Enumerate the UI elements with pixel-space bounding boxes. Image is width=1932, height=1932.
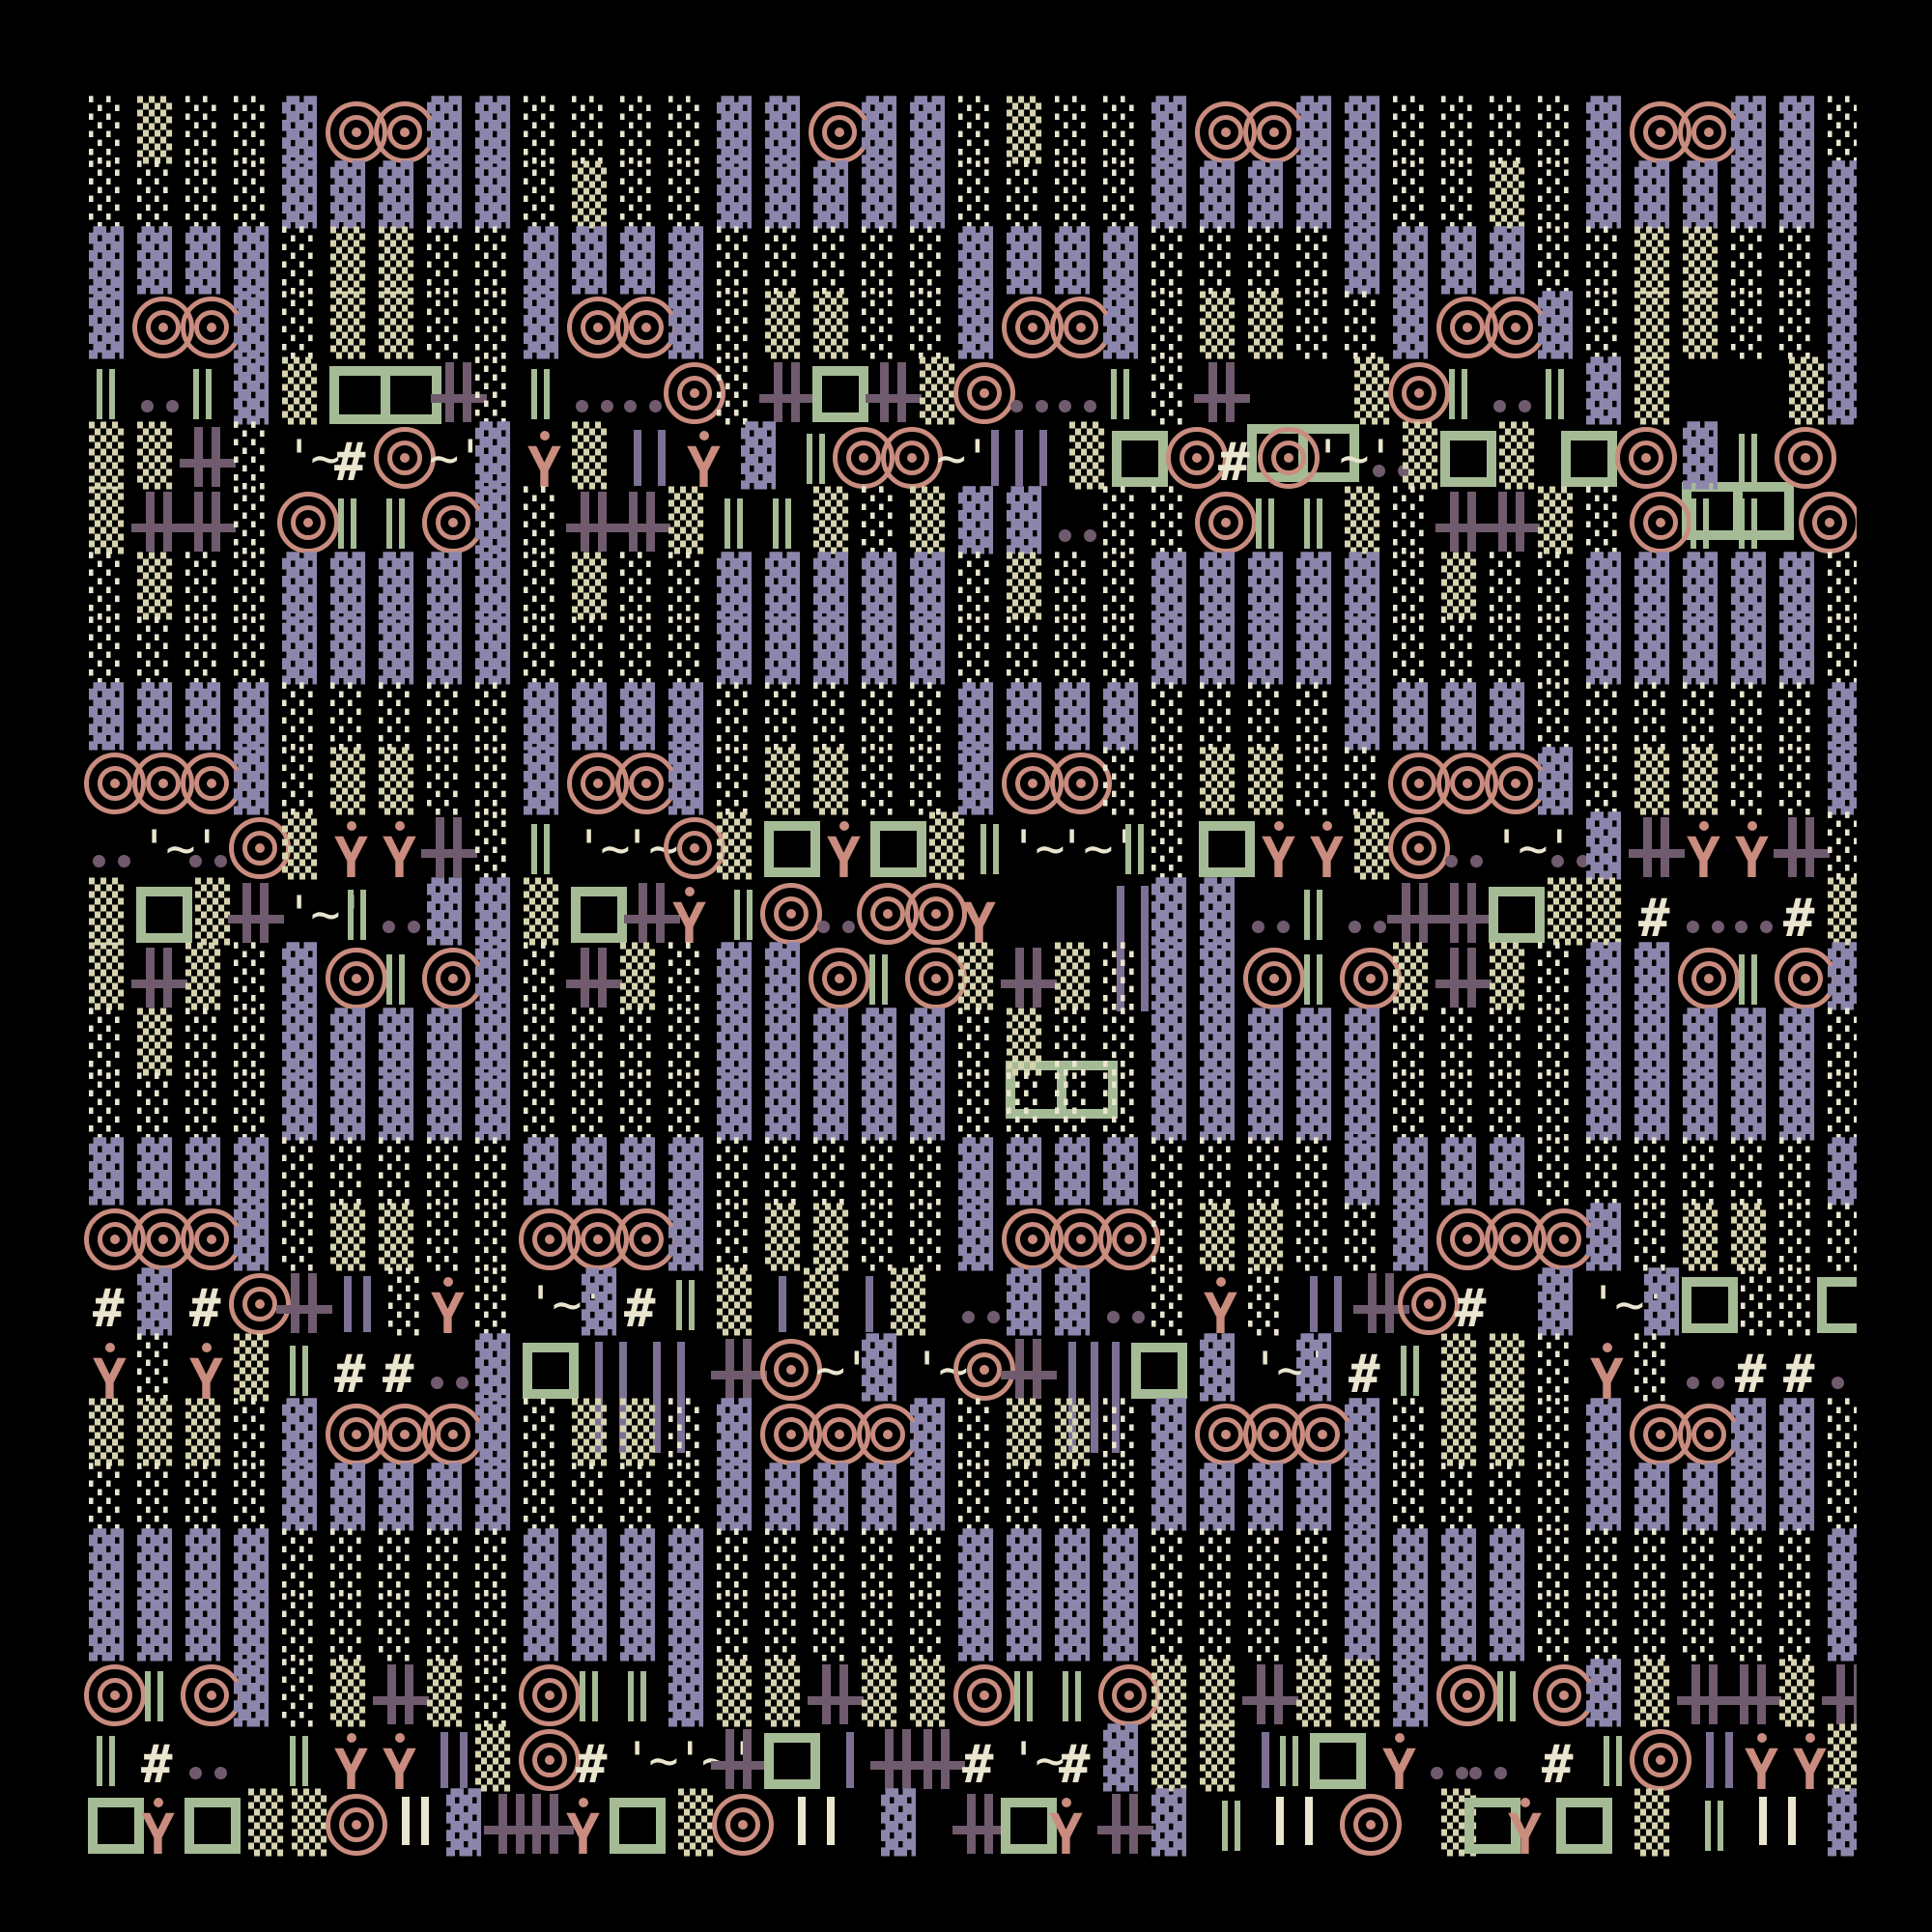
shade-dense-block: ▓ bbox=[741, 422, 776, 490]
cross-icon bbox=[1731, 1664, 1776, 1724]
cross-stroke bbox=[373, 1696, 429, 1705]
double-bar-icon bbox=[628, 1671, 647, 1721]
shade-light-block: ░ bbox=[137, 1334, 172, 1402]
cross-stroke bbox=[1097, 1826, 1153, 1834]
shade-dense-block: ▓ bbox=[765, 617, 800, 685]
shade-light-block: ░ bbox=[475, 1529, 510, 1597]
shade-dense-block: ▓ bbox=[668, 1204, 703, 1271]
shade-light-block: ░ bbox=[910, 1204, 945, 1271]
shade-light-block: ░ bbox=[1393, 487, 1428, 554]
shade-light-block: ░ bbox=[1828, 1463, 1857, 1531]
shade-light-block: ░ bbox=[1586, 1594, 1621, 1662]
shade-light-block: ░ bbox=[668, 617, 703, 685]
shade-dense-block: ▓ bbox=[862, 1073, 896, 1141]
bar bbox=[290, 1736, 296, 1786]
bullseye-dot bbox=[448, 974, 458, 983]
cross-icon bbox=[1103, 1794, 1148, 1854]
shade-dense-block: ▓ bbox=[1151, 161, 1186, 229]
double-bar-icon bbox=[1111, 369, 1130, 419]
bar bbox=[1027, 1671, 1033, 1721]
shade-dense-block: ▓ bbox=[1490, 1138, 1524, 1206]
shade-light-block: ░ bbox=[910, 748, 945, 815]
bar bbox=[1222, 1801, 1228, 1851]
double-bar-icon bbox=[348, 890, 367, 940]
bullseye-ring bbox=[98, 766, 132, 801]
bar bbox=[1703, 498, 1709, 549]
shade-light-block: ░ bbox=[1779, 1268, 1814, 1336]
hash-glyph: # bbox=[624, 1278, 656, 1340]
bullseye-dot bbox=[110, 779, 120, 788]
shade-light-block: ░ bbox=[1393, 553, 1428, 620]
bullseye-ring bbox=[98, 1678, 132, 1713]
shade-dense-block: ▓ bbox=[427, 878, 462, 946]
shade-dense-block: ▓ bbox=[1490, 683, 1524, 751]
shade-dense-block: ▓ bbox=[89, 1594, 124, 1662]
bullseye-dot bbox=[1511, 1235, 1520, 1244]
shade-medium-block: ▒ bbox=[185, 1399, 220, 1466]
vertical-bar-icon bbox=[1039, 430, 1047, 486]
bar bbox=[1604, 1736, 1609, 1786]
shade-light-block: ░ bbox=[234, 487, 269, 554]
shade-dense-block: ▓ bbox=[475, 487, 510, 554]
y-dot-icon bbox=[1322, 821, 1332, 831]
shade-light-block: ░ bbox=[1731, 292, 1766, 359]
dot bbox=[431, 1377, 443, 1389]
shade-dense-block: ▓ bbox=[1345, 1463, 1379, 1531]
shade-dense-block: ▓ bbox=[1103, 1529, 1138, 1597]
double-bar-icon bbox=[869, 954, 889, 1005]
shade-dense-block: ▓ bbox=[137, 227, 172, 295]
bullseye-dot bbox=[400, 453, 410, 463]
bullseye-dot bbox=[690, 388, 699, 398]
shade-dense-block: ▓ bbox=[813, 617, 848, 685]
shade-light-block: ░ bbox=[620, 553, 655, 620]
double-bar-icon bbox=[807, 434, 826, 484]
y-dot-icon bbox=[579, 1798, 588, 1807]
shade-dense-block: ▓ bbox=[1441, 1594, 1476, 1662]
hash-glyph: # bbox=[1735, 1344, 1767, 1406]
bullseye-ring bbox=[1112, 1222, 1147, 1257]
cross-stroke bbox=[212, 492, 220, 552]
bullseye-dot bbox=[1463, 1690, 1472, 1700]
double-bar-icon bbox=[1256, 498, 1275, 549]
shade-light-block: ░ bbox=[668, 1009, 703, 1076]
shade-light-block: ░ bbox=[1828, 617, 1857, 685]
shade-light-block: ░ bbox=[1151, 357, 1186, 425]
bullseye-dot bbox=[835, 128, 844, 137]
shade-dense-block: ▓ bbox=[1586, 1073, 1621, 1141]
shade-medium-block: ▒ bbox=[524, 878, 558, 946]
shade-light-block: ░ bbox=[1345, 1204, 1379, 1271]
bullseye-ring bbox=[1411, 1287, 1446, 1321]
cross-stroke bbox=[387, 1664, 396, 1724]
vertical-bar-icon bbox=[658, 430, 666, 486]
square-icon bbox=[1112, 431, 1168, 487]
bullseye-ring bbox=[1402, 376, 1436, 411]
shade-dense-block: ▓ bbox=[379, 1073, 413, 1141]
shade-dense-block: ▓ bbox=[427, 161, 462, 229]
cross-stroke bbox=[445, 362, 454, 422]
shade-dense-block: ▓ bbox=[475, 617, 510, 685]
bullseye-ring bbox=[774, 896, 809, 931]
shade-light-block: ░ bbox=[1345, 292, 1379, 359]
shade-dense-block: ▓ bbox=[668, 227, 703, 295]
bullseye-ring bbox=[1450, 310, 1485, 345]
vertical-bar-icon bbox=[1725, 1732, 1733, 1788]
bullseye-dot bbox=[1656, 1430, 1665, 1439]
bar bbox=[1413, 1346, 1419, 1396]
shade-light-block: ░ bbox=[1200, 1594, 1235, 1662]
shade-light-block: ░ bbox=[1151, 1268, 1186, 1336]
person-y-icon: Y bbox=[827, 828, 861, 888]
cross-stroke bbox=[1435, 980, 1492, 988]
cross-stroke bbox=[1001, 980, 1057, 988]
bullseye-icon bbox=[760, 883, 822, 945]
bullseye-ring bbox=[1812, 505, 1847, 540]
shade-light-block: ░ bbox=[668, 1463, 703, 1531]
shade-light-block: ░ bbox=[137, 161, 172, 229]
cross-icon bbox=[630, 883, 674, 943]
bullseye-ring bbox=[677, 831, 712, 866]
shade-dense-block: ▓ bbox=[1007, 683, 1041, 751]
bar bbox=[1546, 369, 1551, 419]
bullseye-dot bbox=[1641, 453, 1651, 463]
dot bbox=[1456, 1767, 1468, 1779]
shade-medium-block: ▒ bbox=[1055, 943, 1090, 1010]
shade-dense-block: ▓ bbox=[1683, 1463, 1718, 1531]
bullseye-ring bbox=[1643, 115, 1678, 150]
person-y-icon: Y bbox=[334, 828, 368, 888]
bullseye-ring bbox=[194, 310, 229, 345]
square-icon bbox=[185, 1798, 241, 1854]
bullseye-ring bbox=[1353, 961, 1388, 996]
bar bbox=[1462, 369, 1467, 419]
shade-medium-block: ▒ bbox=[1828, 1724, 1857, 1792]
shade-light-block: ░ bbox=[1779, 1204, 1814, 1271]
square-icon bbox=[764, 1733, 820, 1789]
bar bbox=[351, 498, 356, 549]
shade-light-block: ░ bbox=[717, 227, 752, 295]
shade-light-block: ░ bbox=[475, 292, 510, 359]
bar bbox=[1304, 498, 1310, 549]
bullseye-dot bbox=[1424, 1299, 1434, 1309]
cross-stroke bbox=[308, 1273, 317, 1333]
bar bbox=[676, 1280, 682, 1330]
bullseye-icon bbox=[953, 362, 1015, 424]
shade-medium-block: ▒ bbox=[929, 812, 964, 880]
double-dot-icon bbox=[1252, 921, 1291, 934]
shade-dense-block: ▓ bbox=[1683, 1073, 1718, 1141]
person-y-icon: Y bbox=[383, 1740, 416, 1800]
shade-light-block: ░ bbox=[1490, 97, 1524, 164]
shade-medium-block: ▒ bbox=[1499, 422, 1534, 490]
shade-dense-block: ▓ bbox=[1586, 1009, 1621, 1076]
shade-light-block: ░ bbox=[1586, 683, 1621, 751]
shade-dense-block: ▓ bbox=[89, 227, 124, 295]
shade-light-block: ░ bbox=[185, 1009, 220, 1076]
shade-light-block: ░ bbox=[185, 1463, 220, 1531]
bullseye-dot bbox=[1656, 518, 1665, 527]
bullseye-dot bbox=[303, 518, 313, 527]
bullseye-ring bbox=[242, 831, 277, 866]
dot bbox=[1445, 855, 1458, 867]
shade-dense-block: ▓ bbox=[1151, 617, 1186, 685]
bar bbox=[1268, 498, 1274, 549]
shade-dense-block: ▓ bbox=[862, 1009, 896, 1076]
shade-light-block: ░ bbox=[282, 292, 317, 359]
shade-light-block: ░ bbox=[862, 1204, 896, 1271]
shade-dense-block: ▓ bbox=[379, 1009, 413, 1076]
shade-light-block: ░ bbox=[1055, 1073, 1090, 1141]
shade-medium-block: ▒ bbox=[137, 97, 172, 164]
bullseye-icon bbox=[1398, 1273, 1460, 1335]
bullseye-icon bbox=[1258, 427, 1320, 489]
bullseye-ring bbox=[919, 896, 953, 931]
bullseye-icon bbox=[1436, 1664, 1498, 1726]
shade-dense-block: ▓ bbox=[524, 1594, 558, 1662]
bullseye-dot bbox=[207, 1690, 216, 1700]
shade-dense-block: ▓ bbox=[813, 161, 848, 229]
cross-stroke bbox=[276, 1305, 332, 1314]
cross-icon bbox=[524, 1794, 568, 1854]
bullseye-ring bbox=[146, 766, 181, 801]
bullseye-icon bbox=[277, 492, 339, 554]
bullseye-ring bbox=[146, 310, 181, 345]
cross-stroke bbox=[1015, 1339, 1024, 1399]
bullseye-ring bbox=[1208, 505, 1243, 540]
shade-dense-block: ▓ bbox=[1683, 617, 1718, 685]
double-bar-icon bbox=[1304, 890, 1323, 940]
bullseye-ring bbox=[194, 1222, 229, 1257]
bullseye-ring bbox=[436, 961, 470, 996]
shade-dense-block: ▓ bbox=[475, 1399, 510, 1466]
cross-stroke bbox=[1274, 1664, 1283, 1724]
double-dot-icon bbox=[1059, 529, 1097, 543]
shade-light-block: ░ bbox=[1007, 1073, 1041, 1141]
shade-light-block: ░ bbox=[1103, 617, 1138, 685]
double-bar-icon bbox=[734, 890, 753, 940]
bullseye-dot bbox=[448, 1430, 458, 1439]
bullseye-icon bbox=[519, 1664, 581, 1726]
shade-medium-block: ▒ bbox=[1055, 1399, 1090, 1466]
bullseye-icon bbox=[760, 1339, 822, 1401]
double-dot-icon bbox=[93, 855, 131, 868]
bar bbox=[1510, 1671, 1516, 1721]
cross-stroke bbox=[1822, 1696, 1857, 1705]
cross-icon bbox=[185, 492, 230, 552]
shade-medium-block: ▒ bbox=[1441, 1399, 1476, 1466]
bar bbox=[1690, 498, 1696, 549]
dot bbox=[1349, 921, 1361, 933]
shade-dense-block: ▓ bbox=[475, 1073, 510, 1141]
shade-dense-block: ▓ bbox=[910, 1073, 945, 1141]
shade-dense-block: ▓ bbox=[1296, 1334, 1331, 1402]
shade-dense-block: ▓ bbox=[910, 617, 945, 685]
double-dot-icon bbox=[141, 400, 180, 413]
bullseye-dot bbox=[1511, 779, 1520, 788]
shade-light-block: ░ bbox=[910, 1138, 945, 1206]
cross-stroke bbox=[405, 1664, 413, 1724]
shade-light-block: ░ bbox=[185, 617, 220, 685]
shade-medium-block: ▒ bbox=[1248, 292, 1283, 359]
bar bbox=[993, 824, 999, 874]
square-icon bbox=[812, 366, 868, 422]
double-bar-icon bbox=[193, 369, 213, 419]
shade-light-block: ░ bbox=[765, 1594, 800, 1662]
shade-light-block: ░ bbox=[1393, 1073, 1428, 1141]
shade-dense-block: ▓ bbox=[1828, 683, 1857, 751]
cross-stroke bbox=[902, 1729, 911, 1789]
shade-dense-block: ▓ bbox=[765, 1073, 800, 1141]
shade-light-block: ░ bbox=[1538, 1334, 1573, 1402]
double-bar-icon bbox=[1705, 1801, 1724, 1851]
shade-light-block: ░ bbox=[1828, 812, 1857, 880]
bullseye-dot bbox=[1801, 453, 1810, 463]
cross-stroke bbox=[1691, 1664, 1700, 1724]
bullseye-dot bbox=[1825, 518, 1834, 527]
shade-medium-block: ▒ bbox=[813, 1204, 848, 1271]
shade-medium-block: ▒ bbox=[282, 357, 317, 425]
shade-light-block: ░ bbox=[1731, 227, 1766, 295]
shade-light-block: ░ bbox=[427, 1138, 462, 1206]
shade-light-block: ░ bbox=[1538, 943, 1573, 1010]
shade-light-block: ░ bbox=[862, 292, 896, 359]
shade-dense-block: ▓ bbox=[1151, 1463, 1186, 1531]
shade-light-block: ░ bbox=[1634, 1334, 1669, 1402]
person-y-icon: Y bbox=[1687, 828, 1720, 888]
shade-dense-block: ▓ bbox=[862, 617, 896, 685]
bar bbox=[544, 824, 550, 874]
bullseye-ring bbox=[1064, 766, 1098, 801]
shade-dense-block: ▓ bbox=[1731, 617, 1766, 685]
shade-medium-block: ▒ bbox=[1789, 357, 1824, 425]
bar bbox=[1739, 954, 1745, 1005]
y-dot-icon bbox=[395, 1733, 405, 1743]
shade-medium-block: ▒ bbox=[379, 227, 413, 295]
shade-light-block: ░ bbox=[1200, 227, 1235, 295]
shade-light-block: ░ bbox=[1296, 1594, 1331, 1662]
y-dot-icon bbox=[1757, 1733, 1767, 1743]
bullseye-dot bbox=[641, 323, 651, 332]
shade-light-block: ░ bbox=[1296, 227, 1331, 295]
shade-dense-block: ▓ bbox=[1007, 1529, 1041, 1597]
shade-dense-block: ▓ bbox=[185, 683, 220, 751]
bullseye-dot bbox=[1656, 1755, 1665, 1765]
square-divider bbox=[381, 374, 390, 416]
dot bbox=[1470, 855, 1483, 867]
shade-dense-block: ▓ bbox=[1586, 553, 1621, 620]
shade-dense-block: ▓ bbox=[234, 292, 269, 359]
double-dot-icon bbox=[189, 1767, 228, 1780]
quote-tilde-text: '~' bbox=[139, 817, 218, 881]
shade-dense-block: ▓ bbox=[330, 1073, 365, 1141]
bullseye-dot bbox=[207, 323, 216, 332]
bullseye-ring bbox=[532, 1678, 567, 1713]
shade-light-block: ░ bbox=[862, 683, 896, 751]
shade-dense-block: ▓ bbox=[330, 553, 365, 620]
shade-light-block: ░ bbox=[1586, 292, 1621, 359]
shade-medium-block: ▒ bbox=[1779, 1660, 1814, 1727]
double-dot-icon bbox=[1059, 400, 1097, 413]
shade-dense-block: ▓ bbox=[1103, 1594, 1138, 1662]
shade-light-block: ░ bbox=[1103, 943, 1138, 1010]
shade-light-block: ░ bbox=[427, 748, 462, 815]
shade-light-block: ░ bbox=[1103, 97, 1138, 164]
shade-light-block: ░ bbox=[524, 1399, 558, 1466]
shade-dense-block: ▓ bbox=[1393, 683, 1428, 751]
cross-icon bbox=[1441, 948, 1486, 1008]
quote-tilde-text: '~' bbox=[1492, 817, 1571, 881]
shade-medium-block: ▒ bbox=[668, 487, 703, 554]
square-icon bbox=[1817, 1277, 1857, 1333]
shade-light-block: ░ bbox=[717, 683, 752, 751]
bullseye-dot bbox=[400, 128, 410, 137]
shade-light-block: ░ bbox=[1055, 1463, 1090, 1531]
shade-dense-block: ▓ bbox=[234, 1660, 269, 1727]
shade-medium-block: ▒ bbox=[1345, 487, 1379, 554]
bar bbox=[1123, 369, 1129, 419]
shade-light-block: ░ bbox=[524, 1073, 558, 1141]
shade-light-block: ░ bbox=[1490, 1463, 1524, 1531]
bullseye-dot bbox=[545, 1235, 554, 1244]
bar bbox=[1739, 434, 1745, 484]
shade-light-block: ░ bbox=[1296, 1204, 1331, 1271]
bullseye-dot bbox=[1221, 1430, 1231, 1439]
y-dot-icon bbox=[1216, 1277, 1226, 1287]
double-bar-icon bbox=[290, 1346, 309, 1396]
bar bbox=[386, 954, 392, 1005]
shade-dense-block: ▓ bbox=[475, 422, 510, 490]
bullseye-icon bbox=[1799, 492, 1857, 554]
shade-light-block: ░ bbox=[1538, 161, 1573, 229]
shade-light-block: ░ bbox=[620, 161, 655, 229]
bar bbox=[689, 1280, 695, 1330]
shade-medium-block: ▒ bbox=[1354, 812, 1389, 880]
bullseye-icon bbox=[1615, 427, 1677, 489]
bullseye-dot bbox=[352, 1820, 361, 1830]
bullseye-dot bbox=[1366, 1820, 1376, 1830]
shade-medium-block: ▒ bbox=[1441, 1334, 1476, 1402]
dot bbox=[1760, 921, 1773, 933]
shade-light-block: ░ bbox=[524, 1009, 558, 1076]
shade-light-block: ░ bbox=[524, 943, 558, 1010]
shade-dense-block: ▓ bbox=[1345, 227, 1379, 295]
square-icon bbox=[1131, 1343, 1187, 1399]
shade-dense-block: ▓ bbox=[862, 97, 896, 164]
shade-dense-block: ▓ bbox=[282, 161, 317, 229]
shade-light-block: ░ bbox=[1538, 227, 1573, 295]
dot bbox=[118, 855, 130, 867]
shade-light-block: ░ bbox=[1007, 617, 1041, 685]
shade-dense-block: ▓ bbox=[1731, 1399, 1766, 1466]
shade-dense-block: ▓ bbox=[234, 1204, 269, 1271]
bar bbox=[97, 1736, 102, 1786]
dot bbox=[214, 855, 227, 867]
bullseye-ring bbox=[1257, 1417, 1292, 1452]
cross-stroke bbox=[1450, 883, 1459, 943]
shade-medium-block: ▒ bbox=[195, 878, 230, 946]
bullseye-icon bbox=[1388, 817, 1450, 879]
shade-light-block: ░ bbox=[1490, 1009, 1524, 1076]
double-bar-icon bbox=[1280, 1736, 1299, 1786]
shade-medium-block: ▒ bbox=[1345, 1660, 1379, 1727]
cross-stroke bbox=[1854, 1664, 1857, 1724]
shade-dense-block: ▓ bbox=[1345, 1399, 1379, 1466]
shade-light-block: ░ bbox=[282, 1594, 317, 1662]
square-icon bbox=[1199, 821, 1255, 877]
pattern-area: ░▒░░▓▓▓░░░░▓▓▓▓░▒░░▓▓▓░░░░▓▓▓░░░░░▓▓▓▓▓░… bbox=[75, 75, 1857, 1857]
cross-stroke bbox=[1194, 394, 1250, 403]
